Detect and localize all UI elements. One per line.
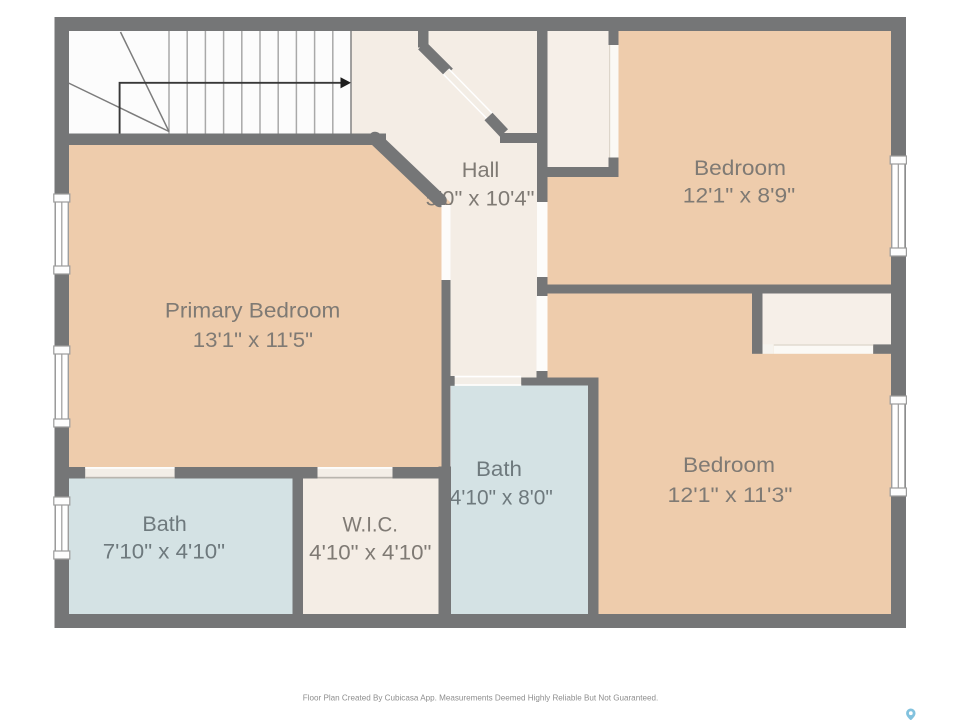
svg-text:Bath: Bath [476, 458, 522, 481]
svg-text:Bath: Bath [142, 513, 186, 536]
svg-text:12'1" x 11'3": 12'1" x 11'3" [668, 484, 793, 507]
svg-text:Hall: Hall [462, 159, 500, 182]
svg-text:Primary Bedroom: Primary Bedroom [165, 300, 341, 323]
svg-text:W.I.C.: W.I.C. [342, 514, 398, 537]
svg-text:Floor Plan Created By Cubicasa: Floor Plan Created By Cubicasa App. Meas… [303, 694, 658, 703]
svg-text:4'10" x 8'0": 4'10" x 8'0" [450, 487, 553, 510]
svg-text:7'10" x 4'10": 7'10" x 4'10" [103, 541, 225, 564]
svg-text:13'1" x 11'5": 13'1" x 11'5" [193, 329, 313, 352]
svg-text:Bedroom: Bedroom [694, 157, 786, 180]
svg-text:12'1" x 8'9": 12'1" x 8'9" [683, 185, 796, 208]
svg-text:Bedroom: Bedroom [683, 454, 775, 477]
svg-text:4'10" x 4'10": 4'10" x 4'10" [309, 542, 431, 565]
